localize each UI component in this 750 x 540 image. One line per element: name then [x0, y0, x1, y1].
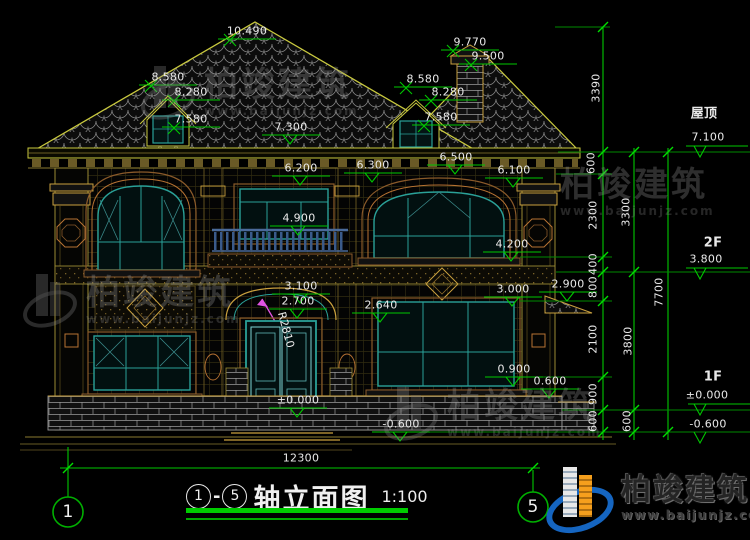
- watermark: 柏竣建筑 www.baijunjz.com: [383, 383, 602, 445]
- watermark-brand: 柏竣建筑: [204, 68, 359, 104]
- watermark: 柏竣建筑 www.baijunjz.com: [140, 62, 359, 124]
- title-underline-thick: [186, 508, 408, 513]
- watermark-logo-icon: [22, 270, 78, 332]
- axis-circle-start: 1: [186, 484, 211, 509]
- watermark: 柏竣建筑 www.baijunjz.com: [22, 270, 241, 332]
- brand-name: 柏竣建筑: [621, 474, 750, 507]
- axis-circle-end: 5: [222, 484, 247, 509]
- axis-bubble-1: [53, 497, 83, 527]
- watermark-logo-icon: [140, 62, 196, 124]
- brand-url: www.baijunjz.com: [621, 507, 750, 522]
- chimney: [451, 45, 489, 122]
- watermark-logo-icon: [383, 383, 439, 445]
- brand-logo: 柏竣建筑 www.baijunjz.com: [543, 463, 750, 533]
- watermark-url: www.baijunjz.com: [204, 104, 359, 118]
- center-2f-window: [234, 184, 334, 244]
- title-dash: -: [213, 486, 220, 507]
- title-underline-thin: [186, 518, 408, 520]
- eave-cornice: [28, 148, 580, 168]
- left-1f-window: [82, 332, 202, 401]
- watermark: 柏竣建筑 www.baijunjz.com: [560, 168, 715, 218]
- brand-logo-icon: [543, 463, 615, 533]
- title-scale: 1:100: [381, 487, 427, 506]
- chain-ticks: [598, 22, 673, 437]
- cad-elevation-screenshot: 柏竣建筑 www.baijunjz.com 柏竣建筑 www.baijunjz.…: [0, 0, 750, 540]
